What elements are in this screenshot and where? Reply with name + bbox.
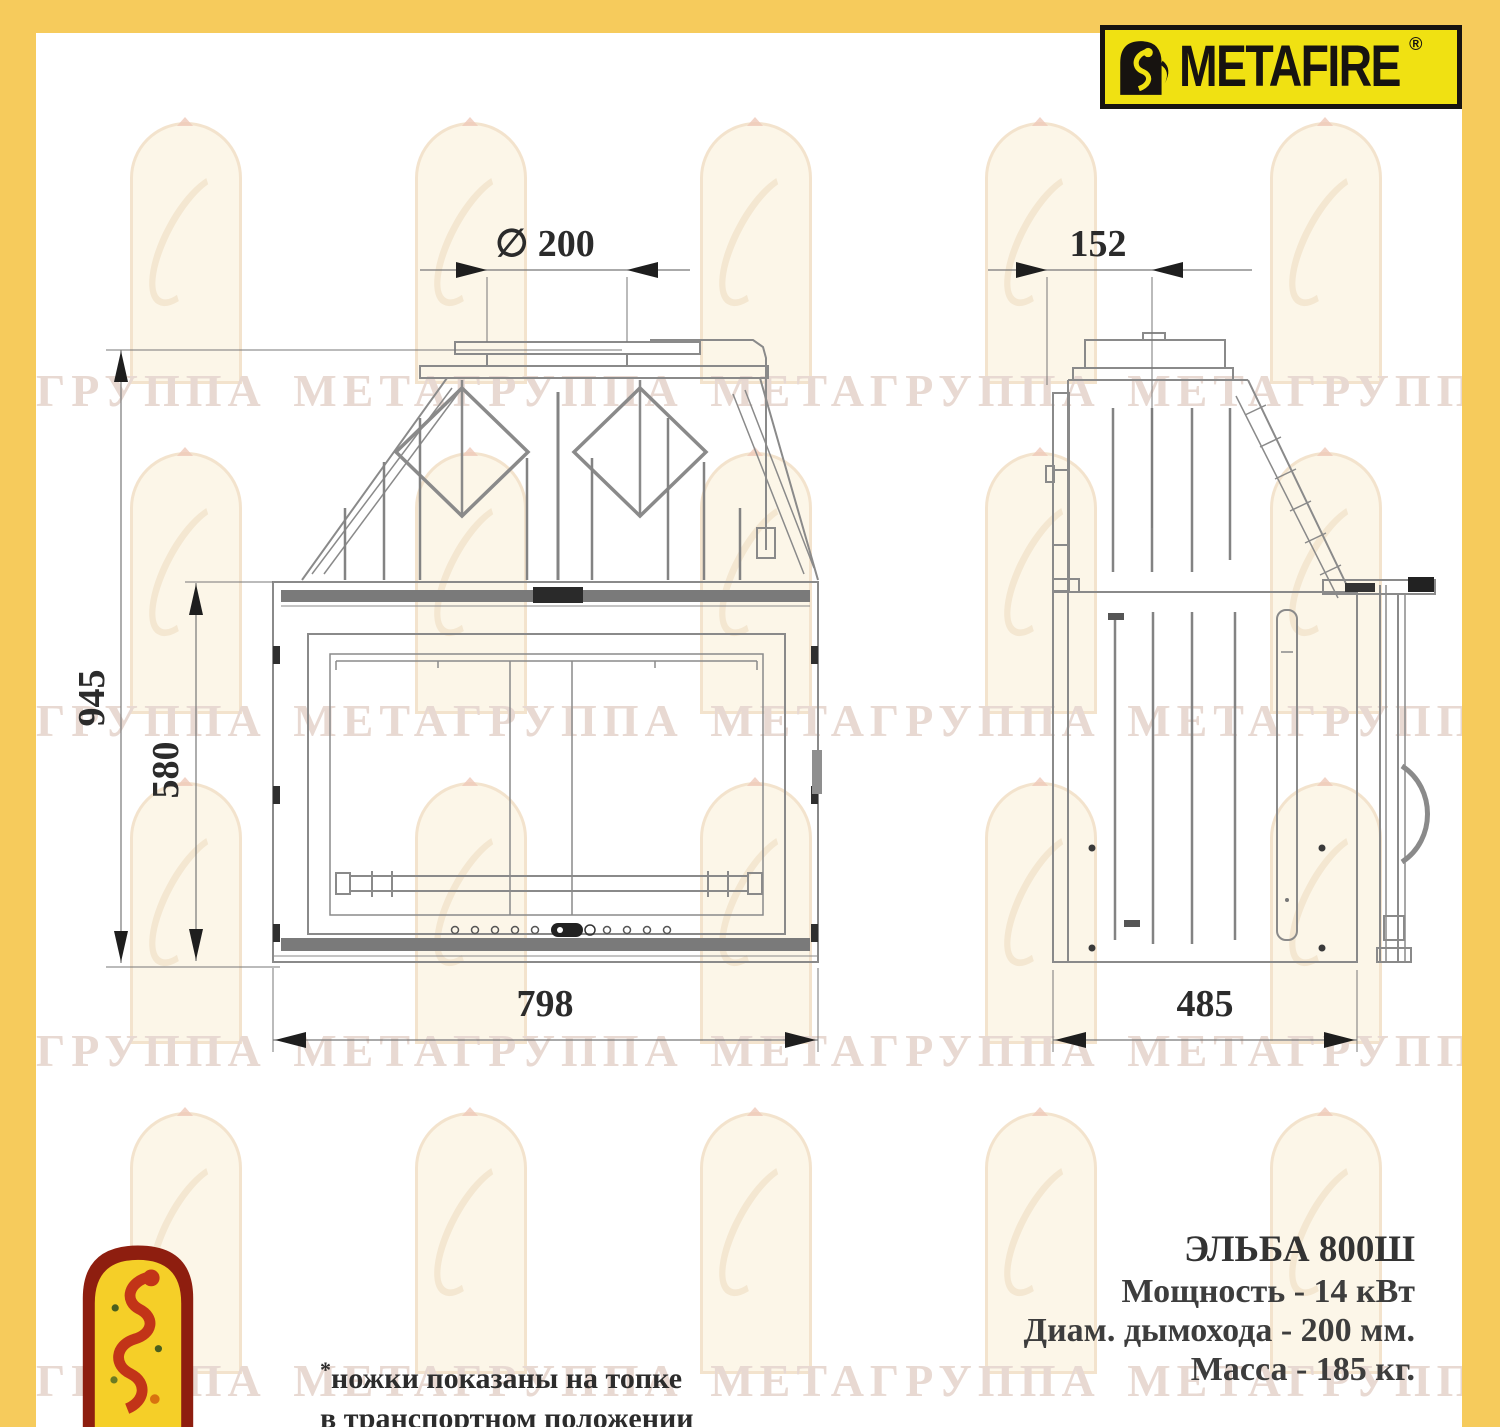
front-view <box>273 340 822 962</box>
dim-side-depth: 485 <box>1177 983 1234 1025</box>
dim-front-width: 798 <box>517 983 574 1025</box>
dim-total-height: 945 <box>71 670 113 727</box>
brand-name: METAFIRE <box>1179 38 1400 96</box>
hood-slats <box>345 392 740 580</box>
footnote-text1: ножки показаны на топке <box>331 1362 682 1395</box>
dim-door-height: 580 <box>145 742 187 799</box>
brand-logo: METAFIRE ® <box>1100 25 1462 109</box>
spec-mass: Масса - 185 кг. <box>1024 1350 1415 1389</box>
spec-sheet-page: ГРУППА МЕТАГРУППА МЕТАГРУППА МЕТАГРУППА … <box>0 0 1500 1427</box>
corner-arch-badge <box>78 1238 198 1427</box>
technical-drawing: ∅ 200 152 945 580 798 485 <box>0 0 1500 1427</box>
product-specs: ЭЛЬБА 800Ш Мощность - 14 кВт Диам. дымох… <box>1024 1228 1415 1389</box>
spec-flue: Диам. дымохода - 200 мм. <box>1024 1311 1415 1350</box>
border-right <box>1462 0 1500 1427</box>
footnote-line1: *ножки показаны на топке <box>320 1350 694 1399</box>
footnote-asterisk: * <box>320 1357 331 1382</box>
footnote: *ножки показаны на топке в транспортном … <box>320 1350 694 1427</box>
border-left <box>0 0 36 1427</box>
dim-flue-side: 152 <box>1070 223 1127 265</box>
door-handle-side <box>1402 766 1428 862</box>
dimension-labels: ∅ 200 152 945 580 798 485 <box>71 223 1234 1025</box>
dim-flue-front: ∅ 200 <box>495 223 595 265</box>
side-hood-ribs <box>1113 408 1230 572</box>
product-model: ЭЛЬБА 800Ш <box>1024 1228 1415 1272</box>
registered-mark: ® <box>1409 34 1422 55</box>
door-handle-bar <box>336 871 762 897</box>
hinge-marks <box>273 646 818 942</box>
bolt-dots <box>1089 845 1326 952</box>
side-view <box>1046 333 1435 962</box>
spec-power: Мощность - 14 кВт <box>1024 1272 1415 1311</box>
damper-ladder <box>1245 405 1341 575</box>
footnote-line2: в транспортном положении <box>320 1399 694 1427</box>
side-body-ribs <box>1115 612 1235 944</box>
brand-arch-icon <box>1113 36 1175 98</box>
